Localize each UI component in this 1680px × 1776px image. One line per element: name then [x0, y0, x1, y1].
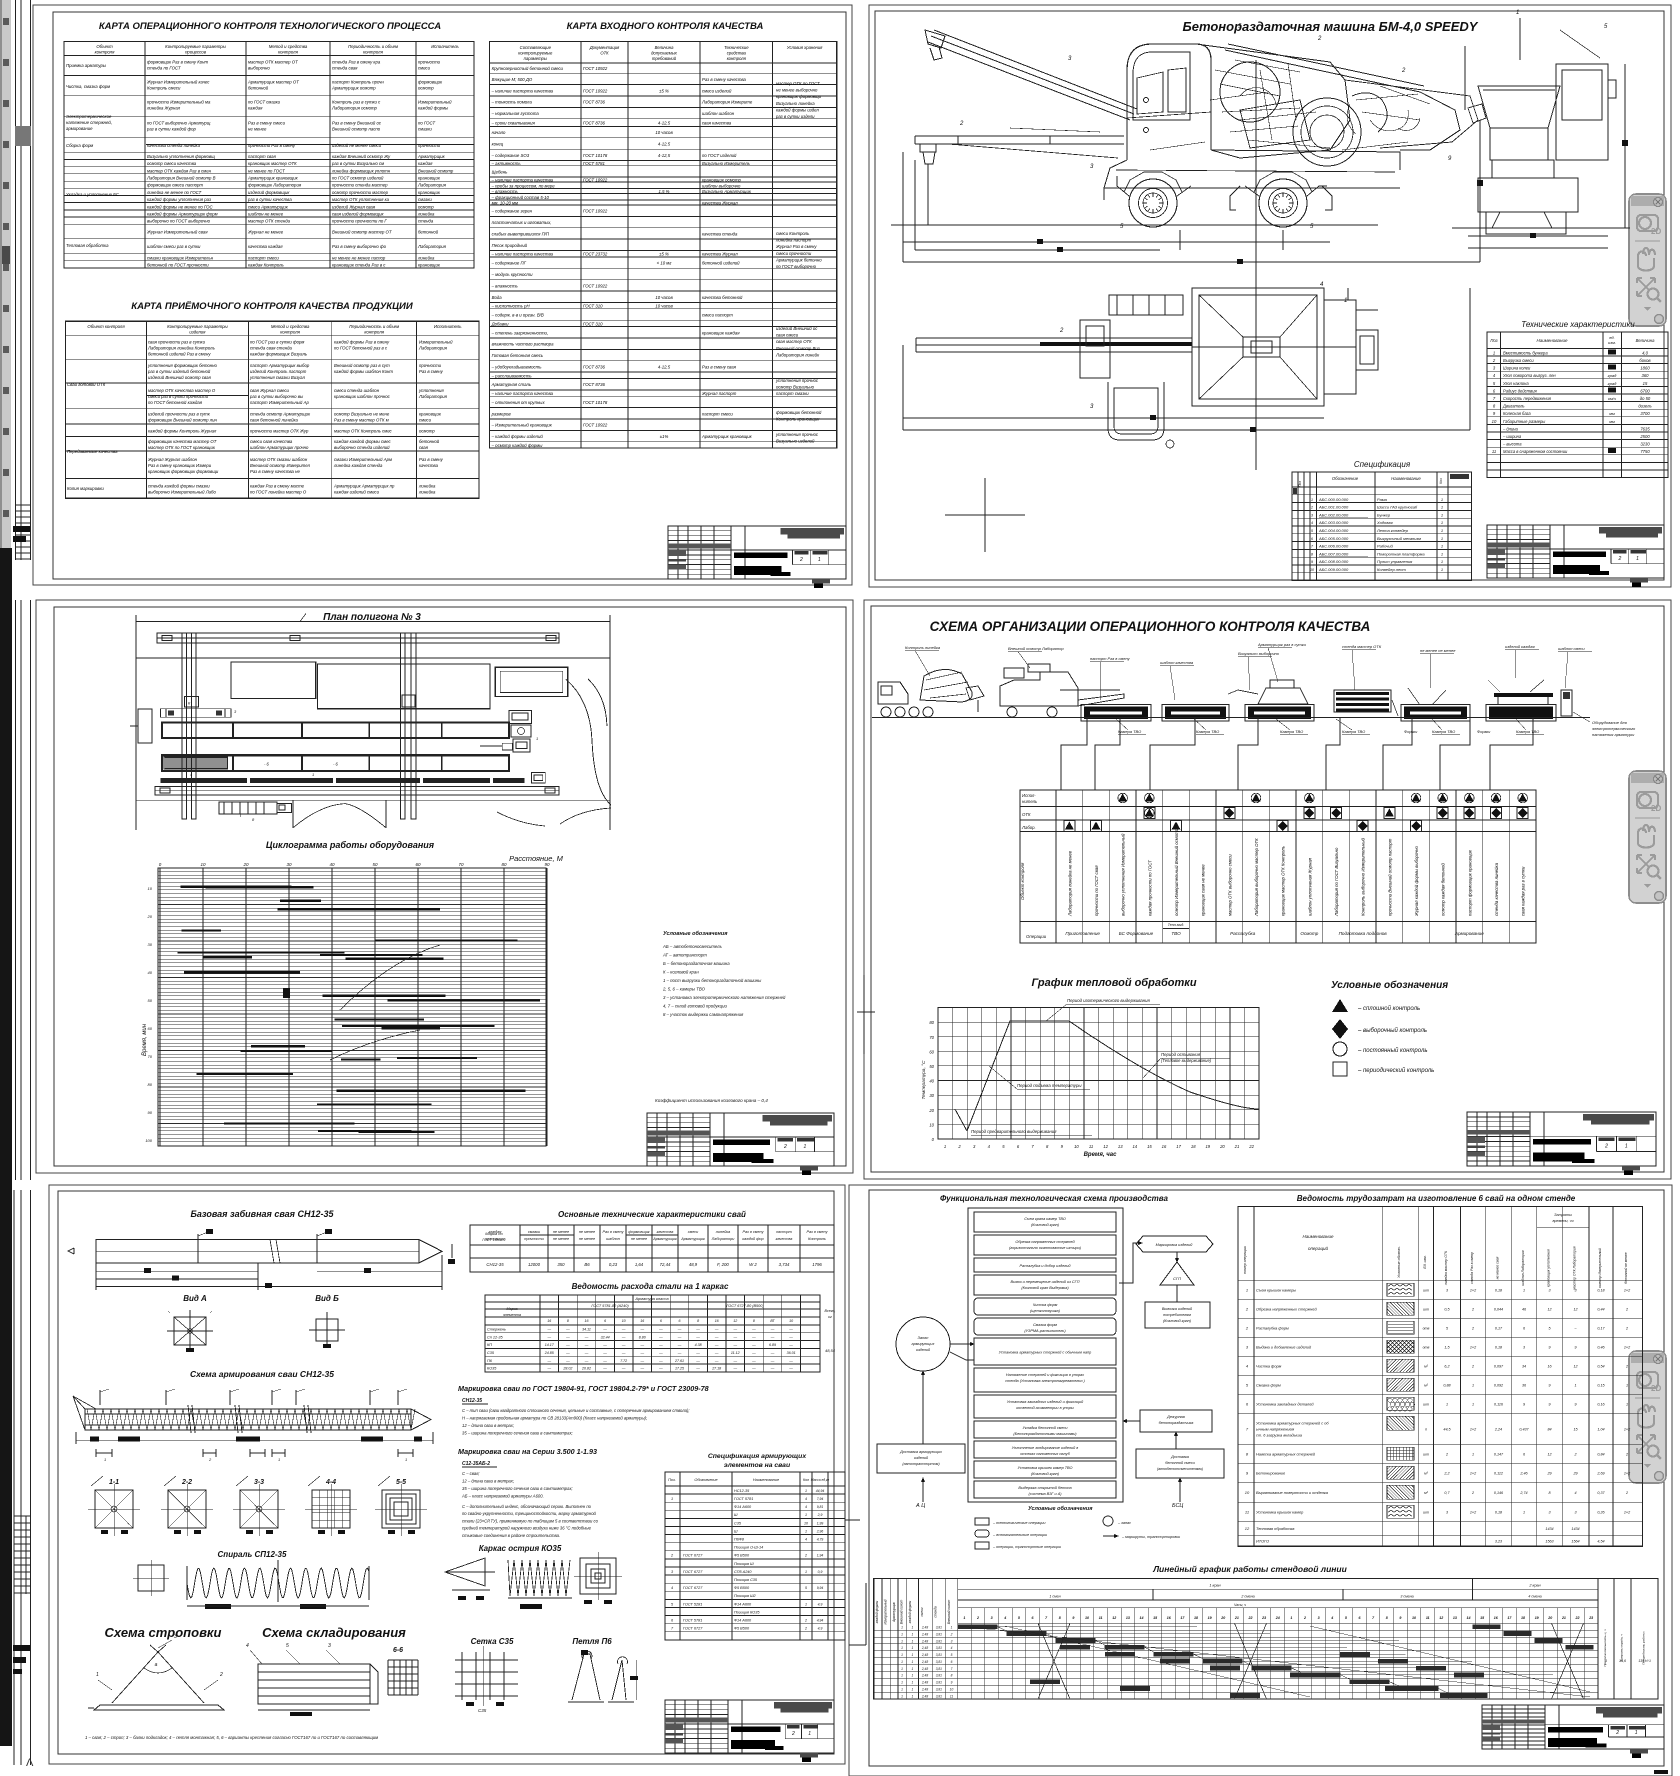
- svg-text:7750: 7750: [1640, 449, 1650, 454]
- svg-text:по ГОСТ осмотр изделий: по ГОСТ осмотр изделий: [332, 176, 384, 181]
- svg-text:1860: 1860: [1640, 366, 1650, 371]
- svg-text:Тепл.выд.: Тепл.выд.: [1168, 923, 1185, 927]
- svg-text:БС Формование: БС Формование: [1119, 931, 1154, 936]
- svg-text:10: 10: [148, 886, 153, 891]
- svg-text:2,24: 2,24: [1494, 1428, 1502, 1432]
- svg-text:С – тип сваи (сваи квадратного: С – тип сваи (сваи квадратного сплошного…: [462, 1408, 690, 1413]
- svg-text:80: 80: [929, 1020, 934, 1025]
- svg-text:каждая Раз в смену масте: каждая Раз в смену масте: [250, 483, 305, 488]
- svg-text:КАРТА ВХОДНОГО КОНТРОЛЯ КАЧ: КАРТА ВХОДНОГО КОНТРОЛЯ КАЧЕСТВА: [567, 21, 764, 32]
- svg-text:—: —: [640, 1351, 645, 1355]
- svg-text:– выборочный контроль: – выборочный контроль: [1357, 1027, 1427, 1034]
- svg-text:(система ВЗГ и А): (система ВЗГ и А): [1028, 1492, 1062, 1496]
- svg-text:каждая изделий смеси: каждая изделий смеси: [334, 489, 380, 494]
- svg-text:– содержание ПГ: – содержание ПГ: [491, 261, 527, 266]
- svg-text:1: 1: [1626, 1384, 1628, 1388]
- svg-text:П6Ф8: П6Ф8: [734, 1538, 745, 1542]
- svg-text:Условные обозначения: Условные обозначения: [1331, 979, 1448, 991]
- svg-text:Натяжение стержней и фиксация: Натяжение стержней и фиксация в упорах: [1006, 1373, 1085, 1377]
- svg-text:0,84: 0,84: [1597, 1453, 1604, 1457]
- svg-text:контроля: контроля: [364, 330, 384, 335]
- svg-text:—: —: [714, 1335, 719, 1339]
- svg-text:Маркировка изделий: Маркировка изделий: [1156, 1243, 1194, 1247]
- svg-text:1: 1: [805, 1529, 807, 1533]
- svg-text:—: —: [584, 1351, 589, 1355]
- svg-text:50: 50: [148, 998, 153, 1003]
- svg-text:ИТОГО: ИТОГО: [1256, 1539, 1269, 1544]
- svg-text:1,94: 1,94: [817, 1554, 824, 1558]
- svg-text:14: 14: [1132, 1144, 1137, 1149]
- svg-text:4,54: 4,54: [1597, 1540, 1604, 1544]
- svg-text:1434: 1434: [1545, 1527, 1553, 1531]
- svg-text:12: 12: [1112, 1616, 1116, 1620]
- svg-text:Арматурщик осмотр: Арматурщик осмотр: [331, 85, 376, 90]
- svg-text:шт: шт: [1423, 1289, 1429, 1293]
- svg-text:крановщик мастер ОТК Контроль: крановщик мастер ОТК Контроль: [1281, 845, 1286, 916]
- svg-text:5: 5: [951, 1653, 953, 1657]
- svg-text:13: 13: [1118, 1144, 1123, 1149]
- svg-text:изделий: изделий: [914, 1456, 929, 1460]
- svg-text:1: 1: [805, 1602, 807, 1606]
- svg-text:30: 30: [286, 862, 292, 867]
- svg-text:изделий: изделий: [916, 1348, 931, 1352]
- svg-text:—: —: [640, 1367, 645, 1371]
- svg-text:Смазка форм: Смазка форм: [1256, 1383, 1281, 1388]
- svg-text:Лаборатори: Лаборатори: [711, 1237, 736, 1241]
- svg-text:слабых выветрившихся П/П: слабых выветрившихся П/П: [492, 231, 550, 236]
- svg-text:(автобетоносмесителями): (автобетоносмесителями): [1157, 1467, 1203, 1471]
- svg-text:Выдача и добавление изделий: Выдача и добавление изделий: [1256, 1345, 1312, 1350]
- svg-text:ОТК: ОТК: [1022, 812, 1031, 817]
- svg-text:смеси паспорт: смеси паспорт: [702, 313, 733, 318]
- svg-text:смеси изделий: смеси изделий: [702, 88, 732, 93]
- svg-text:4: 4: [1574, 1491, 1576, 1495]
- svg-text:Измерительный: Измерительный: [418, 100, 452, 105]
- svg-text:ГОСТ 10922: ГОСТ 10922: [583, 66, 608, 71]
- svg-text:уплотнения прочнос: уплотнения прочнос: [775, 432, 819, 437]
- svg-text:10: 10: [1245, 1490, 1250, 1495]
- svg-text:АБС.009.00.000: АБС.009.00.000: [1318, 567, 1349, 572]
- svg-text:2: 2: [219, 1672, 223, 1678]
- svg-text:—: —: [788, 1328, 793, 1332]
- svg-text:прочности Измерительный ма: прочности Измерительный ма: [147, 100, 211, 105]
- svg-text:—: —: [788, 1367, 793, 1371]
- svg-text:3: 3: [991, 1616, 993, 1620]
- svg-text:22: 22: [1248, 1616, 1253, 1620]
- svg-text:1: 1: [1635, 1730, 1638, 1736]
- svg-text:качества стенда: качества стенда: [702, 231, 738, 236]
- svg-text:2: 2: [1445, 1453, 1448, 1457]
- svg-text:С – дополнительный индекс, обо: С – дополнительный индекс, обозначающий …: [462, 1504, 592, 1509]
- svg-text:бетонораздатчика: бетонораздатчика: [1159, 1421, 1194, 1425]
- svg-text:12: 12: [1439, 1616, 1443, 1620]
- svg-text:2: 2: [1471, 1308, 1474, 1312]
- svg-text:0,18: 0,18: [1495, 1346, 1503, 1350]
- svg-text:12 – длина сваи в метрах;: 12 – длина сваи в метрах;: [462, 1423, 515, 1428]
- svg-text:10: 10: [1412, 1616, 1416, 1620]
- svg-text:1: 1: [901, 1660, 903, 1664]
- svg-text:крановщик: крановщик: [418, 262, 441, 267]
- svg-text:0,146: 0,146: [1494, 1491, 1504, 1495]
- svg-text:0,16: 0,16: [1597, 1403, 1605, 1407]
- svg-text:конец: конец: [492, 142, 504, 147]
- svg-text:Установка арматурных стержней: Установка арматурных стержней с об: [1256, 1421, 1329, 1426]
- svg-text:2 смена: 2 смена: [1240, 1595, 1254, 1599]
- svg-text:– фракционный состав 5-10: – фракционный состав 5-10: [491, 195, 550, 200]
- svg-text:Бункер: Бункер: [1377, 512, 1391, 517]
- svg-text:АБС.006.00.000: АБС.006.00.000: [1318, 544, 1349, 549]
- svg-text:80: 80: [148, 1082, 153, 1087]
- svg-text:мастер ОТК смазки шаблон: мастер ОТК смазки шаблон: [250, 457, 308, 462]
- svg-text:—: —: [751, 1359, 756, 1363]
- svg-text:1: 1: [1472, 1453, 1474, 1457]
- svg-text:Визуально Арматурщик: Визуально Арматурщик: [702, 189, 752, 194]
- svg-text:Петля П6: Петля П6: [572, 1637, 612, 1646]
- svg-text:84: 84: [1547, 1428, 1551, 1432]
- svg-text:18: 18: [1194, 1616, 1198, 1620]
- svg-text:каждой фор: каждой фор: [742, 1237, 763, 1241]
- svg-text:Контроль линейка: Контроль линейка: [905, 645, 941, 650]
- svg-text:—: —: [677, 1343, 682, 1347]
- svg-text:Поворотная платформа: Поворотная платформа: [1377, 551, 1425, 556]
- svg-text:линейка Журнал: линейка Журнал: [146, 106, 181, 111]
- svg-text:АБС.000.00.000: АБС.000.00.000: [1318, 497, 1349, 502]
- svg-text:9: 9: [1574, 1403, 1576, 1407]
- svg-text:параметры: параметры: [524, 56, 547, 61]
- svg-text:требований: требований: [652, 56, 677, 61]
- svg-text:- 6: - 6: [264, 762, 270, 767]
- svg-text:контроля: контроля: [727, 56, 747, 61]
- svg-text:100: 100: [145, 1138, 152, 1143]
- svg-text:2: 2: [959, 121, 964, 127]
- svg-text:Ед. изм.: Ед. изм.: [1423, 1255, 1427, 1268]
- svg-text:1: 1: [912, 1653, 914, 1657]
- svg-text:6: 6: [660, 1319, 662, 1323]
- svg-text:3,734: 3,734: [779, 1262, 790, 1267]
- svg-text:Затраты: Затраты: [1554, 1213, 1572, 1217]
- svg-text:Вместимость бункера: Вместимость бункера: [1503, 350, 1548, 355]
- svg-text:4: 4: [951, 1646, 953, 1650]
- svg-text:—: —: [565, 1335, 570, 1339]
- svg-text:1: 1: [1625, 1144, 1628, 1150]
- svg-text:смазки Измерительный Арм: смазки Измерительный Арм: [334, 457, 392, 462]
- svg-text:КАРТА ОПЕРАЦИОННОГО КОНТРОЛЯ: КАРТА ОПЕРАЦИОННОГО КОНТРОЛЯ ТЕХНОЛОГИЧЕ…: [99, 21, 441, 32]
- svg-text:– влажность: – влажность: [491, 283, 519, 288]
- svg-text:АБС.003.00.000: АБС.003.00.000: [1318, 520, 1349, 525]
- svg-text:—: —: [584, 1335, 589, 1339]
- svg-text:—: —: [733, 1367, 738, 1371]
- svg-text:Б – бетонораздаточная машина: Б – бетонораздаточная машина: [663, 961, 730, 966]
- svg-text:средней температурой наружного: средней температурой наружного воздуха н…: [462, 1526, 592, 1531]
- svg-text:бетонной смеси: бетонной смеси: [1165, 1461, 1195, 1465]
- svg-text:ГОСТ 6727: ГОСТ 6727: [683, 1554, 703, 1558]
- svg-text:качества стенда линейка: качества стенда линейка: [147, 143, 201, 148]
- svg-text:каждая: каждая: [418, 161, 433, 166]
- svg-text:каждой формы издел: каждой формы издел: [776, 107, 819, 112]
- svg-text:мастер ОТК Контроль смес: мастер ОТК Контроль смес: [334, 428, 393, 433]
- svg-text:Конвейер лент: Конвейер лент: [1377, 567, 1406, 572]
- svg-text:крановщик стенда Раз в с: крановщик стенда Раз в с: [332, 262, 386, 267]
- svg-text:крановщик мастер ОТК: крановщик мастер ОТК: [248, 161, 297, 166]
- svg-text:осмотр смеси качества: осмотр смеси качества: [147, 161, 197, 166]
- svg-text:2: 2: [791, 1731, 795, 1737]
- svg-text:4, 7 – склад готовой продукции: 4, 7 – склад готовой продукции: [663, 1004, 728, 1009]
- svg-text:Измерительный: Измерительный: [419, 339, 453, 344]
- svg-text:по ГОСТ смазки: по ГОСТ смазки: [248, 100, 281, 105]
- svg-text:Коэффициент использования козл: Коэффициент использования козлового кран…: [655, 1098, 768, 1103]
- svg-text:4,9: 4,9: [818, 1627, 823, 1631]
- svg-text:прочности стенда мастер: прочности стенда мастер: [332, 183, 388, 188]
- svg-text:Схема складирования: Схема складирования: [262, 1625, 406, 1640]
- svg-text:4: 4: [1330, 1616, 1333, 1620]
- svg-text:Запас: Запас: [917, 1335, 928, 1340]
- svg-text:32.44: 32.44: [601, 1335, 610, 1339]
- svg-text:Арматурщик: Арматурщик: [680, 1237, 705, 1241]
- svg-text:60: 60: [148, 1026, 153, 1031]
- svg-text:Основные технические характе: Основные технические характеристики свай: [558, 1210, 746, 1219]
- svg-text:прочности Раз в смену: прочности Раз в смену: [248, 143, 296, 148]
- svg-text:—: —: [677, 1351, 682, 1355]
- svg-text:паспорт формовщик крановщик: паспорт формовщик крановщик: [1467, 849, 1472, 916]
- svg-text:2: 2: [1625, 1327, 1628, 1331]
- svg-text:стенда Раз в смену: стенда Раз в смену: [1470, 1252, 1474, 1284]
- svg-text:4: 4: [1003, 1616, 1006, 1620]
- svg-text:—: —: [621, 1328, 626, 1332]
- svg-text:Ф5 В500: Ф5 В500: [734, 1627, 750, 1631]
- svg-text:Вода: Вода: [492, 295, 503, 300]
- svg-text:АБС.001.00.000: АБС.001.00.000: [1318, 505, 1349, 510]
- svg-text:(Бетонораздаточными машинами): (Бетонораздаточными машинами): [1013, 1432, 1077, 1436]
- svg-text:1: 1: [912, 1681, 914, 1685]
- svg-text:– нормальная густота: – нормальная густота: [491, 111, 540, 116]
- svg-text:—: —: [547, 1335, 552, 1339]
- svg-text:40: 40: [929, 1079, 934, 1084]
- svg-text:70: 70: [148, 1054, 153, 1059]
- svg-text:—: —: [658, 1351, 663, 1355]
- svg-text:1: 1: [901, 1681, 903, 1685]
- svg-text:(автотранспортом): (автотранспортом): [902, 1462, 940, 1466]
- svg-text:5: 5: [805, 1586, 807, 1590]
- svg-text:—: —: [621, 1343, 626, 1347]
- svg-text:паспорт Раз в смену: паспорт Раз в смену: [1090, 656, 1131, 661]
- svg-text:СН12-35: СН12-35: [462, 1398, 482, 1404]
- svg-text:0,54: 0,54: [1597, 1365, 1604, 1369]
- svg-text:– периодический контроль: – периодический контроль: [1357, 1067, 1434, 1074]
- svg-text:Лаборатория Внешний осмотр В: Лаборатория Внешний осмотр В: [146, 176, 216, 181]
- svg-text:Ходовая: Ходовая: [1376, 520, 1393, 525]
- svg-text:Условные обознач.: Условные обознач.: [1397, 1246, 1401, 1278]
- svg-text:формовщик: формовщик: [628, 1230, 649, 1234]
- svg-text:до 50: до 50: [1640, 396, 1651, 401]
- svg-text:– Измерительный крановщик: – Измерительный крановщик: [491, 423, 553, 428]
- svg-text:40: 40: [329, 862, 335, 867]
- svg-text:– пробы за процессом, по мере: – пробы за процессом, по мере: [491, 183, 556, 188]
- svg-text:29: 29: [1546, 1472, 1551, 1476]
- svg-text:осмотр каждая бетонной: осмотр каждая бетонной: [1441, 863, 1446, 916]
- svg-text:23: 23: [1261, 1616, 1266, 1620]
- svg-text:—: —: [658, 1328, 663, 1332]
- svg-text:Внешний осмот: Внешний осмот: [947, 1599, 951, 1624]
- svg-text:1: 1: [912, 1646, 914, 1650]
- svg-text:ГОСТ 10922: ГОСТ 10922: [583, 178, 608, 183]
- svg-text:осмотр прочности мастер: осмотр прочности мастер: [332, 190, 389, 195]
- svg-text:1: 1: [912, 1639, 914, 1643]
- svg-text:Визуально изделий: Визуально изделий: [776, 439, 815, 444]
- svg-text:– вспомогательные операции: – вспомогательные операции: [992, 1533, 1048, 1537]
- svg-text:шаблон не менее: шаблон не менее: [248, 211, 284, 216]
- svg-text:каждой формы: каждой формы: [418, 106, 449, 111]
- svg-text:14,6: 14,6: [1619, 1659, 1626, 1663]
- svg-text:Составляющие: Составляющие: [520, 45, 552, 50]
- svg-text:1564: 1564: [1571, 1540, 1579, 1544]
- svg-text:выборочно стенда изделий: выборочно стенда изделий: [334, 445, 390, 450]
- svg-text:1: 1: [278, 1457, 280, 1462]
- svg-text:6700: 6700: [1640, 388, 1650, 393]
- svg-text:2: 2: [950, 1632, 953, 1636]
- svg-text:Формы: Формы: [1477, 729, 1490, 734]
- svg-text:3,81: 3,81: [936, 1674, 942, 1678]
- svg-text:—: —: [584, 1359, 589, 1363]
- svg-text:– наличие паспорта качества: – наличие паспорта качества: [491, 391, 554, 396]
- svg-text:не менее не менее: не менее не менее: [1420, 648, 1456, 653]
- svg-text:—: —: [770, 1359, 775, 1363]
- svg-text:—: —: [733, 1328, 738, 1332]
- svg-text:44,5: 44,5: [1443, 1428, 1451, 1432]
- svg-text:Установка закладных деталей: Установка закладных деталей: [1256, 1402, 1314, 1407]
- svg-text:Вид А: Вид А: [183, 1294, 207, 1303]
- svg-text:Журнал Измерительный качес: Журнал Измерительный качес: [146, 79, 210, 84]
- svg-text:Сетка С35: Сетка С35: [471, 1637, 514, 1646]
- svg-text:Арматурщик бетонно: Арматурщик бетонно: [775, 257, 822, 262]
- svg-text:2,74: 2,74: [1519, 1491, 1527, 1495]
- svg-text:1: 1: [1523, 1511, 1525, 1515]
- svg-text:2: 2: [1625, 1453, 1628, 1457]
- svg-text:смеси прочности: смеси прочности: [776, 251, 812, 256]
- svg-text:13: 13: [1126, 1616, 1130, 1620]
- svg-text:—: —: [714, 1328, 719, 1332]
- svg-text:1 – свая; 2 – строп; 3 – балки: 1 – свая; 2 – строп; 3 – балки подкладок…: [85, 1735, 378, 1740]
- svg-text:2: 2: [1573, 1453, 1576, 1457]
- svg-text:1: 1: [1472, 1403, 1474, 1407]
- svg-text:натяжения арматуры: натяжения арматуры: [1592, 732, 1634, 737]
- svg-text:Журнал Раз в смену: Журнал Раз в смену: [775, 244, 817, 249]
- svg-text:1: 1: [901, 1667, 903, 1671]
- svg-text:6: 6: [679, 1319, 681, 1323]
- svg-text:5: 5: [1311, 529, 1313, 533]
- svg-text:ТВО: ТВО: [1171, 931, 1181, 936]
- svg-text:1: 1: [1493, 350, 1495, 355]
- svg-text:2: 2: [1471, 1491, 1474, 1495]
- svg-text:нитель: нитель: [1022, 799, 1038, 804]
- svg-text:0,116: 0,116: [1494, 1403, 1504, 1407]
- svg-text:±5 %: ±5 %: [659, 252, 669, 257]
- svg-text:±5 %: ±5 %: [659, 88, 669, 93]
- svg-text:изделий Внешний осмотр свая: изделий Внешний осмотр свая: [148, 375, 212, 380]
- svg-text:отв: отв: [1423, 1346, 1430, 1350]
- svg-text:– наличие паспорта качества: – наличие паспорта качества: [491, 178, 554, 183]
- svg-text:1: 1: [1441, 544, 1443, 549]
- svg-text:Арматурщик: Арматурщик: [417, 154, 446, 159]
- svg-text:1: 1: [1605, 1659, 1607, 1663]
- svg-text:стали (23×СР.ТУ), применяемую: стали (23×СР.ТУ), применяемую по таблица…: [462, 1518, 599, 1523]
- svg-text:Раз в смену крановщик Измери: Раз в смену крановщик Измери: [148, 463, 212, 468]
- svg-text:шаблон шаблон: шаблон шаблон: [702, 111, 735, 116]
- svg-text:20: 20: [1547, 1616, 1552, 1620]
- svg-text:80: 80: [501, 862, 507, 867]
- svg-text:Период остывания: Период остывания: [1161, 1052, 1201, 1057]
- svg-text:Доставка: Доставка: [1170, 1455, 1189, 1459]
- svg-text:не менее: не менее: [553, 1230, 569, 1234]
- svg-text:Дежурная: Дежурная: [1166, 1415, 1185, 1419]
- svg-text:30: 30: [929, 1093, 934, 1098]
- svg-text:свая мастер ОТК: свая мастер ОТК: [776, 339, 812, 344]
- svg-text:не менее не менее паспор: не менее не менее паспор: [332, 255, 386, 260]
- svg-text:С35: С35: [487, 1351, 495, 1355]
- svg-text:Контролируемые параметры: Контролируемые параметры: [165, 44, 226, 49]
- svg-text:не менее свая: не менее свая: [1496, 1257, 1500, 1280]
- svg-text:12: 12: [1547, 1308, 1551, 1312]
- svg-text:—: —: [602, 1367, 607, 1371]
- svg-text:12: 12: [1103, 1144, 1108, 1149]
- svg-text:смеси свая качества: смеси свая качества: [250, 439, 293, 444]
- svg-text:выборочно по ГОСТ выборочно: выборочно по ГОСТ выборочно: [147, 219, 211, 224]
- svg-text:—: —: [695, 1367, 700, 1371]
- svg-text:13: 13: [1453, 1616, 1457, 1620]
- svg-text:—: —: [751, 1367, 756, 1371]
- svg-text:Электротермическое: Электротермическое: [66, 114, 112, 119]
- svg-text:Обозначение: Обозначение: [1332, 476, 1359, 481]
- svg-text:косвенной асимметрии в упоры: косвенной асимметрии в упоры: [1016, 1406, 1073, 1410]
- svg-text:1,5 %: 1,5 %: [659, 189, 670, 194]
- svg-text:Распалубка: Распалубка: [1230, 931, 1256, 936]
- svg-text:ГОСТ 10178: ГОСТ 10178: [583, 400, 608, 405]
- svg-text:8: 8: [1059, 1616, 1061, 1620]
- svg-text:изделий не менее смеси: изделий не менее смеси: [332, 143, 382, 148]
- svg-text:2: 2: [1471, 1365, 1474, 1369]
- svg-text:Раз в смену Внешний ос: Раз в смену Внешний ос: [332, 121, 382, 126]
- svg-text:2,48: 2,48: [921, 1632, 928, 1636]
- svg-text:—: —: [770, 1351, 775, 1355]
- svg-text:раз в сутки качества: раз в сутки качества: [247, 197, 292, 202]
- svg-text:Съем крана камер ТВО: Съем крана камер ТВО: [1024, 1217, 1066, 1221]
- svg-text:3: 3: [951, 1639, 953, 1643]
- svg-text:8: 8: [1386, 1616, 1388, 1620]
- svg-text:7.72: 7.72: [620, 1359, 627, 1363]
- svg-text:10: 10: [804, 1521, 808, 1525]
- svg-text:3,81: 3,81: [936, 1626, 942, 1630]
- svg-text:контролируемые: контролируемые: [518, 51, 553, 56]
- svg-text:1: 1: [901, 1687, 903, 1691]
- svg-text:Сборка форм: Сборка форм: [66, 143, 93, 148]
- svg-text:Линейный график работы стен: Линейный график работы стендовой линии: [1152, 1564, 1347, 1574]
- svg-text:1: 1: [912, 1626, 914, 1630]
- svg-text:Крупнозернистый бетонной смеси: Крупнозернистый бетонной смеси: [492, 66, 564, 71]
- svg-text:34.11: 34.11: [582, 1328, 591, 1332]
- svg-text:Колесная база: Колесная база: [1503, 411, 1531, 416]
- svg-text:16: 16: [547, 1319, 551, 1323]
- svg-text:Навеска арматурных стержней: Навеска арматурных стержней: [1256, 1452, 1316, 1457]
- svg-text:Раз в смену: Раз в смену: [419, 457, 444, 462]
- svg-text:—: —: [751, 1343, 756, 1347]
- svg-text:2: 2: [1310, 506, 1313, 510]
- svg-text:паспорт Контроль прочн: паспорт Контроль прочн: [332, 79, 384, 84]
- svg-text:20: 20: [1220, 1616, 1225, 1620]
- svg-text:12: 12: [1547, 1453, 1551, 1457]
- svg-text:дизель: дизель: [1638, 404, 1651, 409]
- svg-text:—: —: [658, 1343, 663, 1347]
- svg-text:начало: начало: [492, 130, 506, 135]
- svg-text:по ГОСТ бетонной каждая: по ГОСТ бетонной каждая: [148, 400, 203, 405]
